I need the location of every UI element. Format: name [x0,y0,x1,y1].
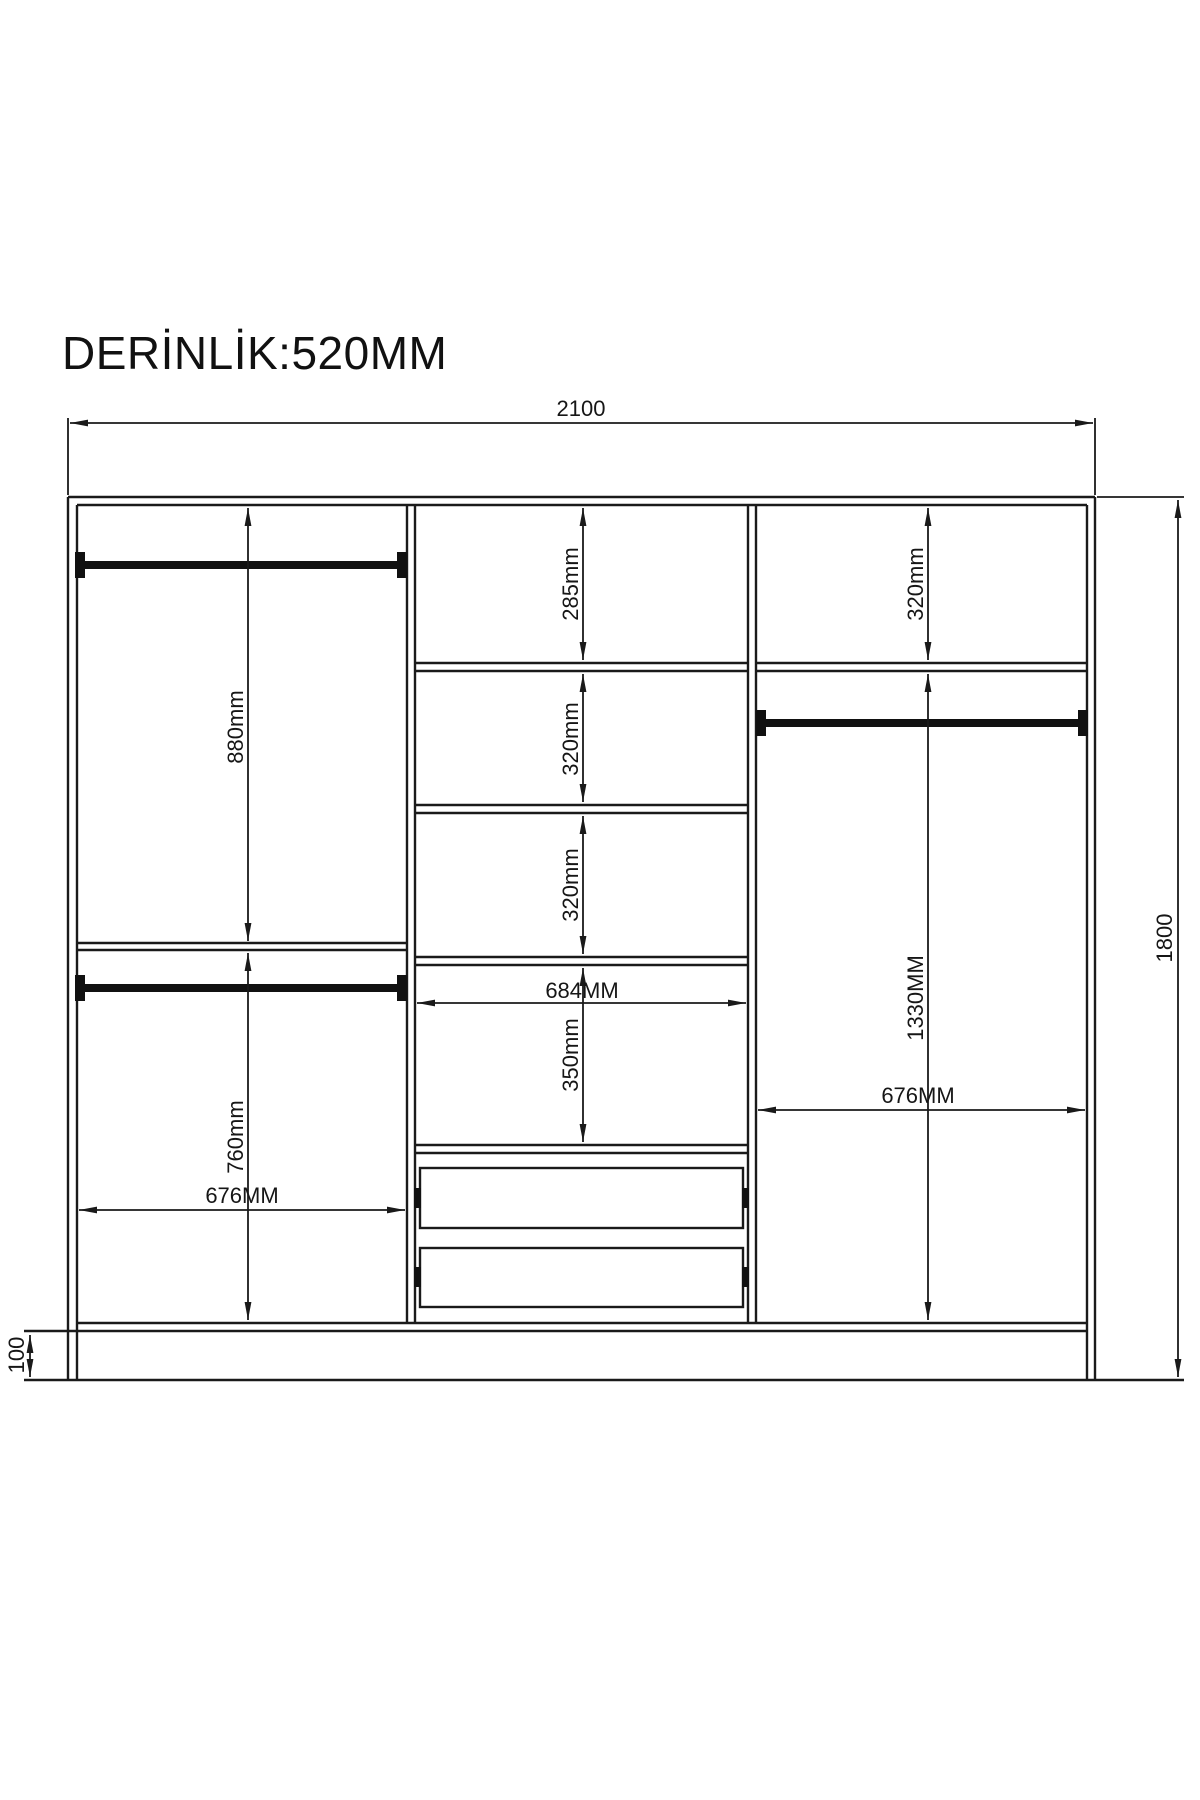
dim-right-top: 320mm [903,547,928,620]
drawer-slide-icon [414,1188,421,1208]
dim-mid-width: 684MM [545,978,618,1003]
rod-bracket-icon [756,710,766,736]
rod-bracket-icon [397,975,407,1001]
dim-mid-comp3: 320mm [558,848,583,921]
hanging-rod [84,561,398,569]
dim-base-height: 100 [4,1337,29,1374]
drawer-slide-icon [742,1188,749,1208]
dim-mid-comp2: 320mm [558,702,583,775]
dim-right-width: 676MM [881,1083,954,1108]
drawing-title: DERİNLİK:520MM [62,326,447,380]
dim-left-upper: 880mm [223,690,248,763]
hanging-rod [84,984,398,992]
drawer-slide-icon [414,1267,421,1287]
rod-bracket-icon [1078,710,1088,736]
dim-overall-width: 2100 [557,396,606,421]
wardrobe-dimension-diagram: 2100 1800 100 880mm 760mm 676MM 285mm 32… [0,0,1200,1800]
dim-left-width: 676MM [205,1183,278,1208]
dim-right-hanging: 1330MM [903,955,928,1041]
drawer-slide-icon [742,1267,749,1287]
dim-mid-comp1: 285mm [558,547,583,620]
dim-left-lower: 760mm [223,1100,248,1173]
dimension-labels: 2100 1800 100 880mm 760mm 676MM 285mm 32… [4,396,1177,1373]
drawer-front [420,1168,743,1228]
drawers [414,1168,749,1307]
rod-bracket-icon [75,552,85,578]
rod-bracket-icon [397,552,407,578]
drawer-front [420,1248,743,1307]
dim-overall-height: 1800 [1152,914,1177,963]
dim-mid-comp4: 350mm [558,1018,583,1091]
technical-drawing-page: DERİNLİK:520MM [0,0,1200,1800]
hanging-rod [765,719,1079,727]
rod-bracket-icon [75,975,85,1001]
